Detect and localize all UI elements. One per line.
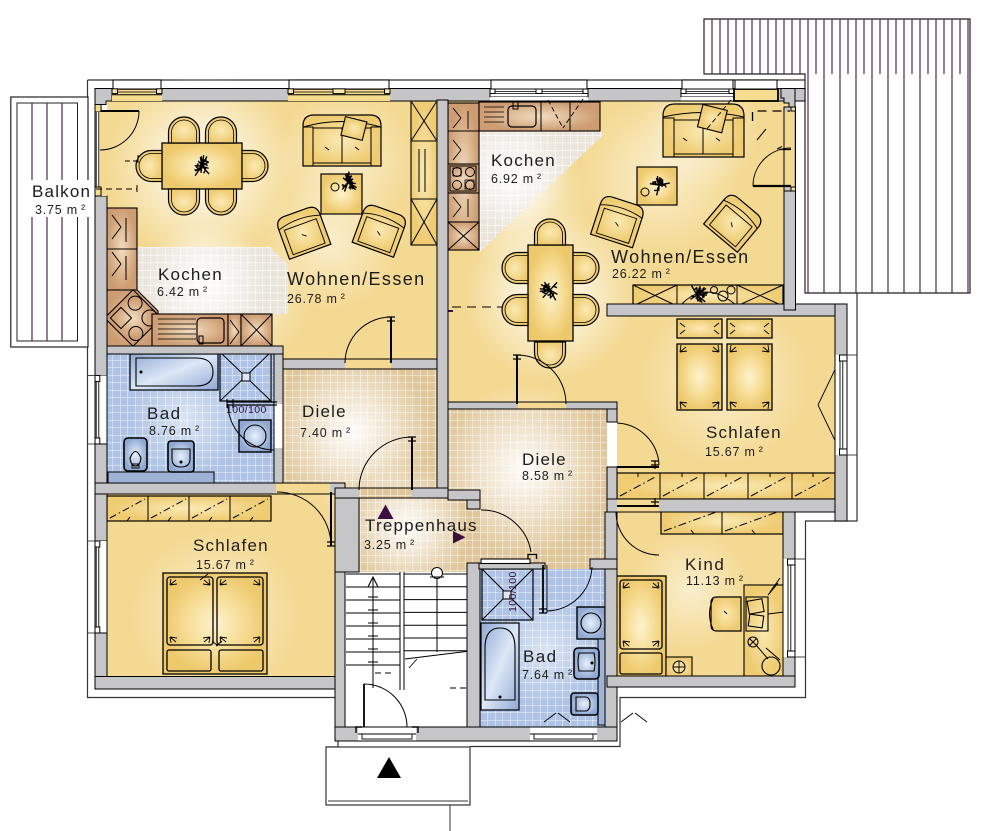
svg-text:Balkon: Balkon: [32, 182, 91, 201]
svg-text:Schlafen: Schlafen: [193, 536, 269, 555]
svg-text:Diele: Diele: [522, 450, 567, 469]
svg-text:15.67 m²: 15.67 m²: [705, 444, 764, 459]
svg-text:Bad: Bad: [147, 404, 181, 423]
svg-text:Schlafen: Schlafen: [706, 423, 782, 442]
svg-text:100/100: 100/100: [226, 404, 267, 416]
svg-text:11.13 m²: 11.13 m²: [686, 573, 744, 588]
svg-text:Wohnen/Essen: Wohnen/Essen: [287, 269, 426, 289]
svg-text:Bad: Bad: [523, 647, 557, 666]
svg-text:26.78 m²: 26.78 m²: [287, 291, 346, 306]
svg-text:Kind: Kind: [685, 555, 725, 574]
svg-text:26.22 m²: 26.22 m²: [612, 266, 671, 281]
svg-text:15.67 m²: 15.67 m²: [196, 557, 255, 572]
svg-text:Kochen: Kochen: [491, 151, 556, 170]
svg-text:Wohnen/Essen: Wohnen/Essen: [611, 247, 750, 267]
svg-text:100/100: 100/100: [507, 571, 519, 612]
svg-text:Diele: Diele: [302, 402, 347, 421]
svg-text:Kochen: Kochen: [158, 265, 223, 284]
